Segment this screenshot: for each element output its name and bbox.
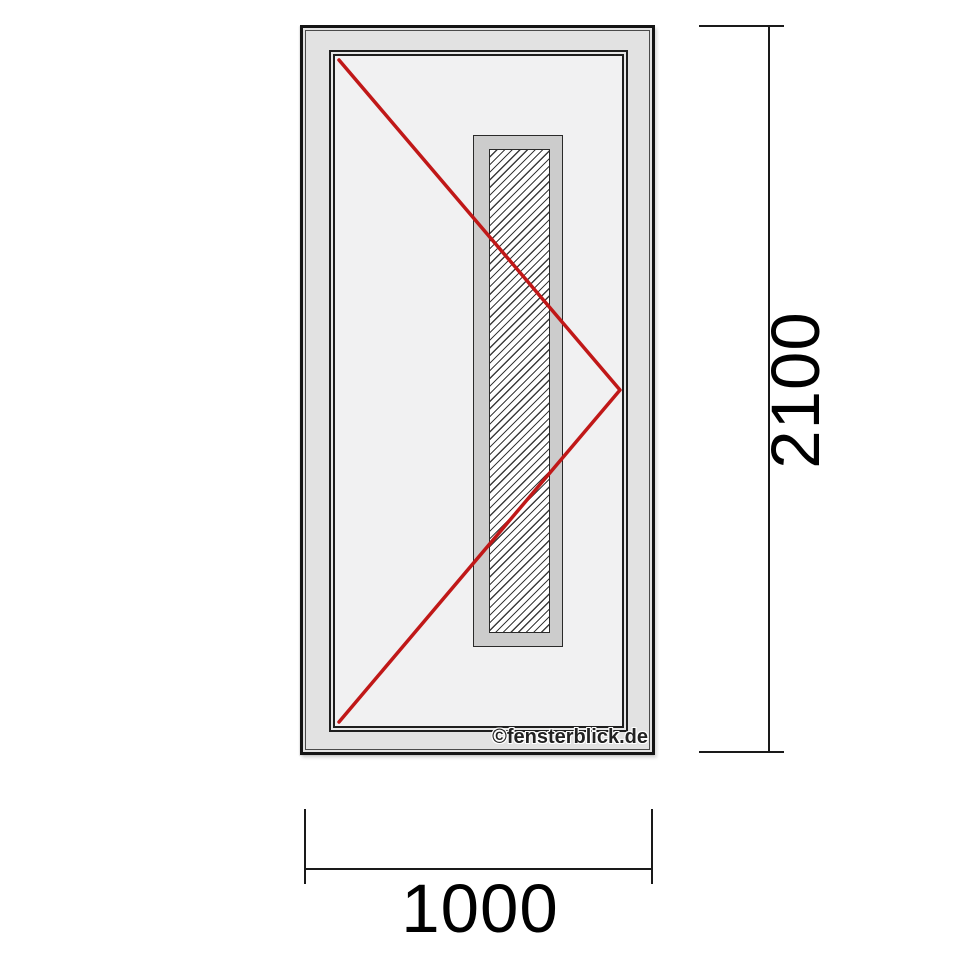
width-dimension-tick-right [651, 809, 653, 884]
door-drawing: 2100 1000 ©fensterblick.de [0, 0, 960, 960]
width-dimension-label: 1000 [380, 874, 580, 943]
glass-pane-hatch [489, 149, 550, 633]
watermark: ©fensterblick.de [468, 726, 648, 749]
width-dimension-tick-left [304, 809, 306, 884]
height-dimension-label: 2100 [760, 290, 830, 490]
height-dimension-tick-bottom [699, 751, 784, 753]
height-dimension-tick-top [699, 25, 784, 27]
